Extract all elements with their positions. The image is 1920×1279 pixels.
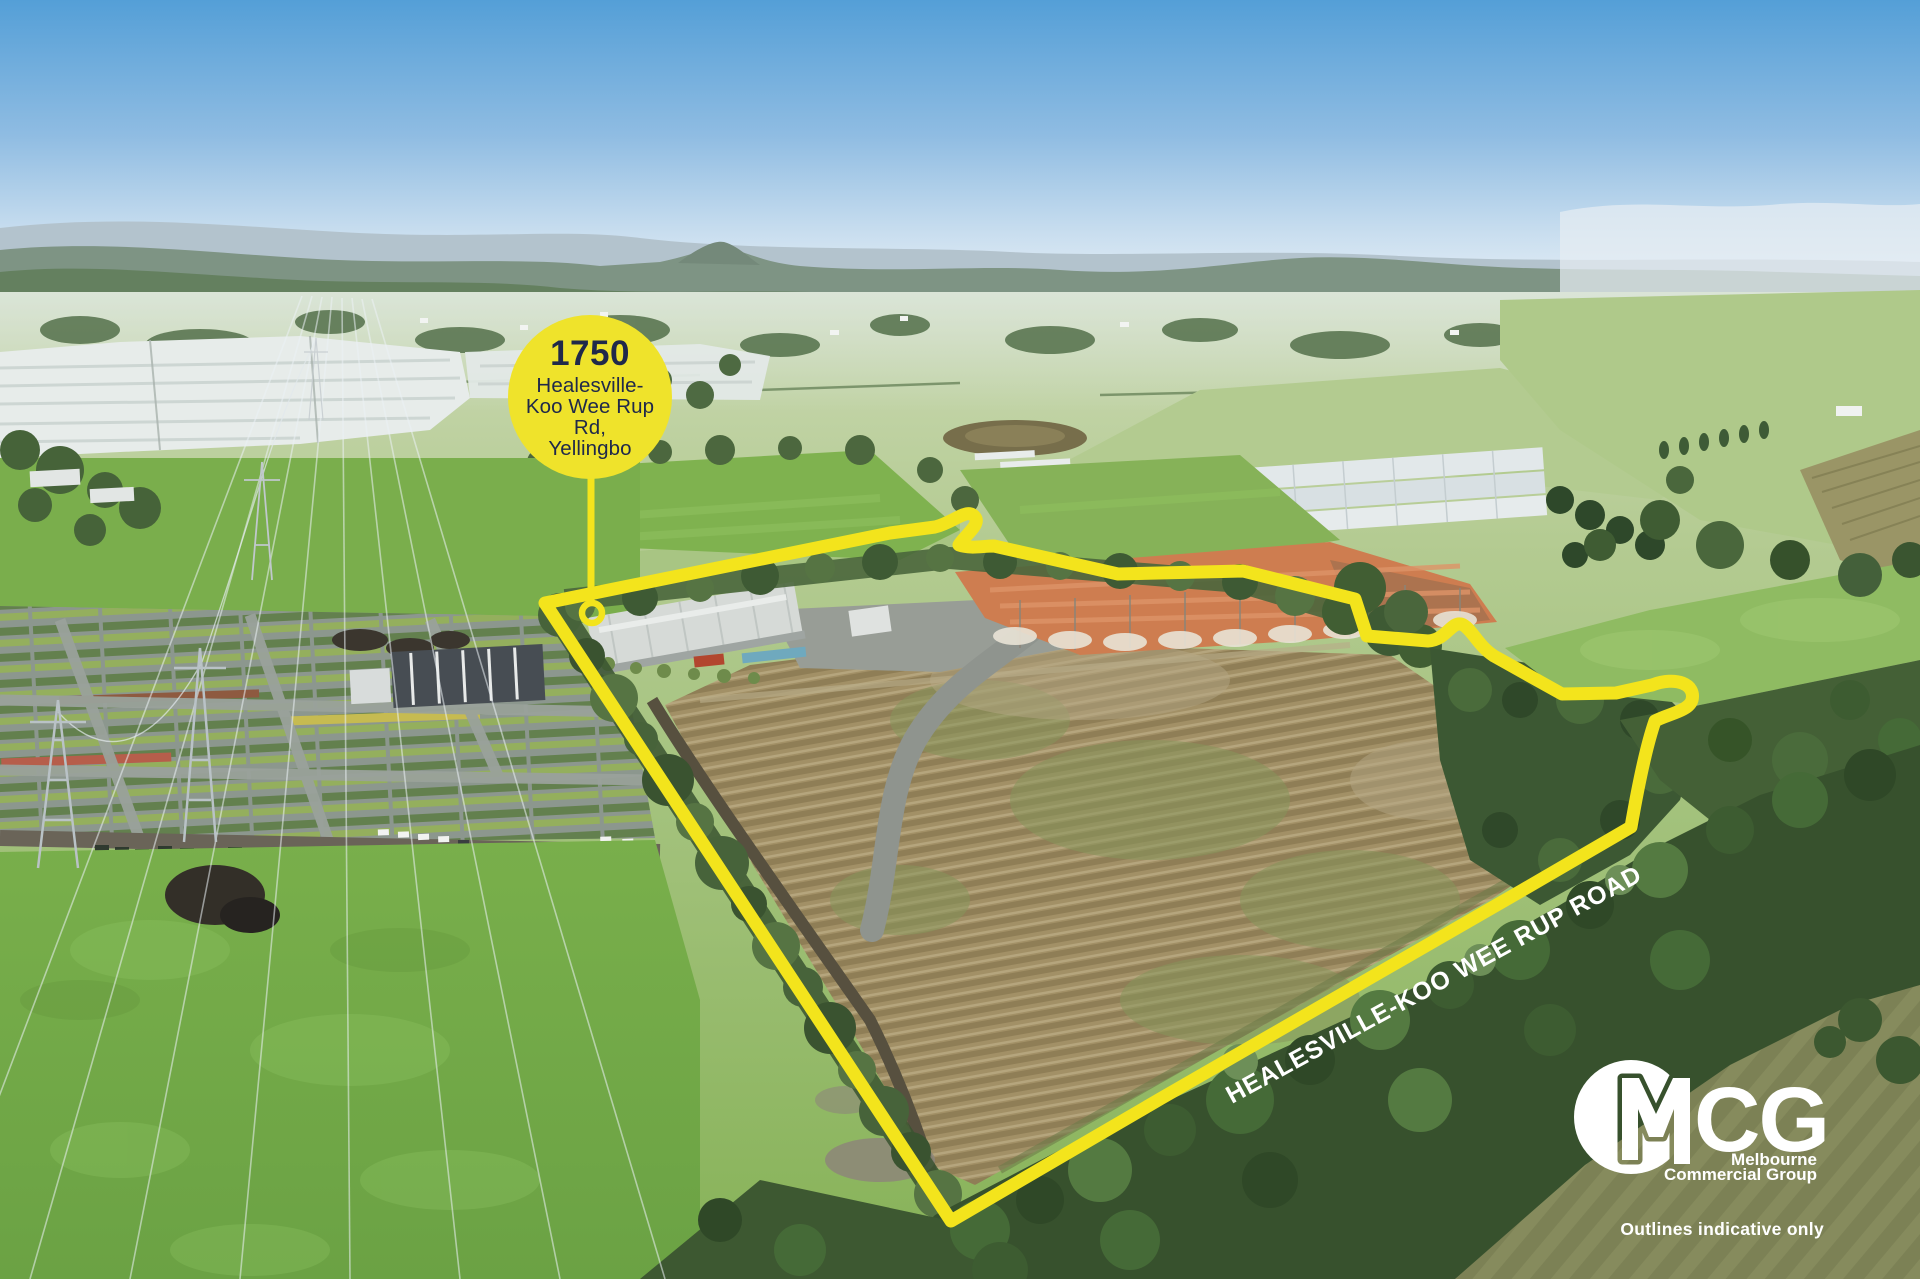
address-line-2: Koo Wee Rup Rd, — [508, 396, 672, 438]
mcg-logo: CG Melbourne Commercial Group — [1570, 1046, 1828, 1186]
address-badge: 1750 Healesville- Koo Wee Rup Rd, Yellin… — [508, 315, 672, 479]
logo-name-line2: Commercial Group — [1664, 1165, 1817, 1184]
street-number: 1750 — [550, 335, 630, 373]
disclaimer-text: Outlines indicative only — [1620, 1219, 1824, 1240]
address-line-1: Healesville- — [536, 375, 643, 396]
left-pasture-and-nursery — [0, 430, 660, 860]
address-line-3: Yellingbo — [548, 438, 631, 459]
property-marketing-image: 1750 Healesville- Koo Wee Rup Rd, Yellin… — [0, 0, 1920, 1279]
